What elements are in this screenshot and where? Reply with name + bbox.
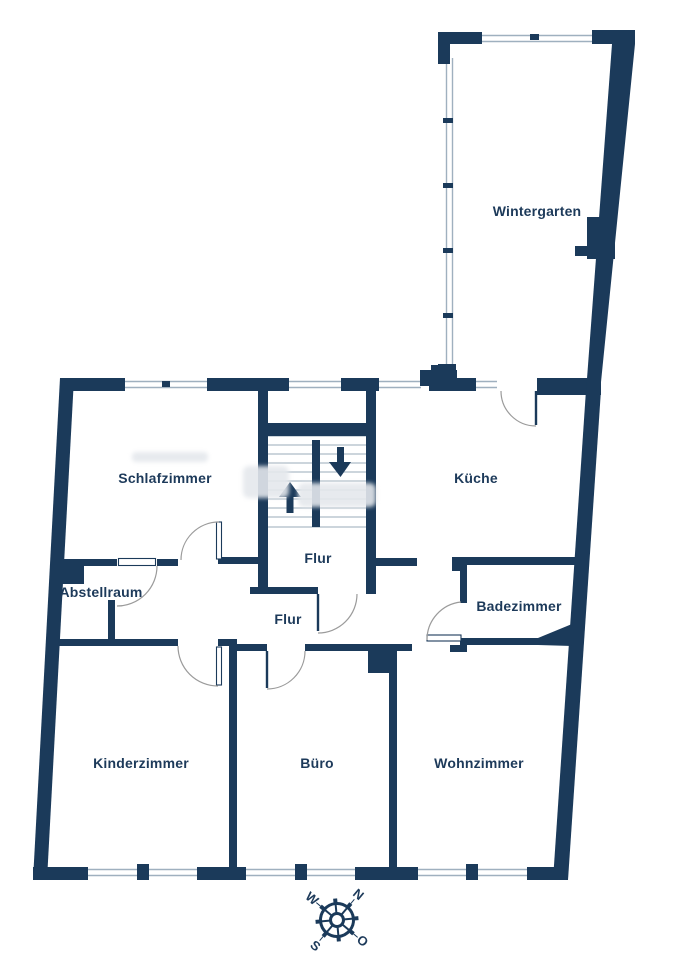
compass-letter-o: O: [354, 932, 371, 950]
door-wintergarten: [501, 391, 536, 426]
door-schlafzimmer: [181, 522, 222, 560]
room-label-wintergarten: Wintergarten: [493, 203, 582, 219]
door-badezimmer: [427, 602, 461, 641]
room-label-schlafzimmer: Schlafzimmer: [118, 470, 212, 486]
room-label-wohnzimmer: Wohnzimmer: [434, 755, 524, 771]
room-label-buero: Büro: [300, 755, 333, 771]
room-label-flur-mitte: Flur: [274, 611, 302, 627]
room-label-flur-oben: Flur: [304, 550, 332, 566]
room-label-kueche: Küche: [454, 470, 498, 486]
room-label-badezimmer: Badezimmer: [476, 598, 562, 614]
floorplan-canvas: Wintergarten Schlafzimmer Küche Flur Abs…: [0, 0, 678, 960]
room-label-abstellraum: Abstellraum: [59, 584, 142, 600]
door-flur-oben: [318, 594, 357, 633]
door-buero: [267, 651, 305, 689]
floorplan-page: Wintergarten Schlafzimmer Küche Flur Abs…: [0, 0, 678, 960]
room-label-kinderzimmer: Kinderzimmer: [93, 755, 189, 771]
compass-letter-s: S: [307, 937, 324, 954]
compass-letter-n: N: [350, 886, 367, 904]
door-kinderzimmer: [178, 646, 222, 686]
